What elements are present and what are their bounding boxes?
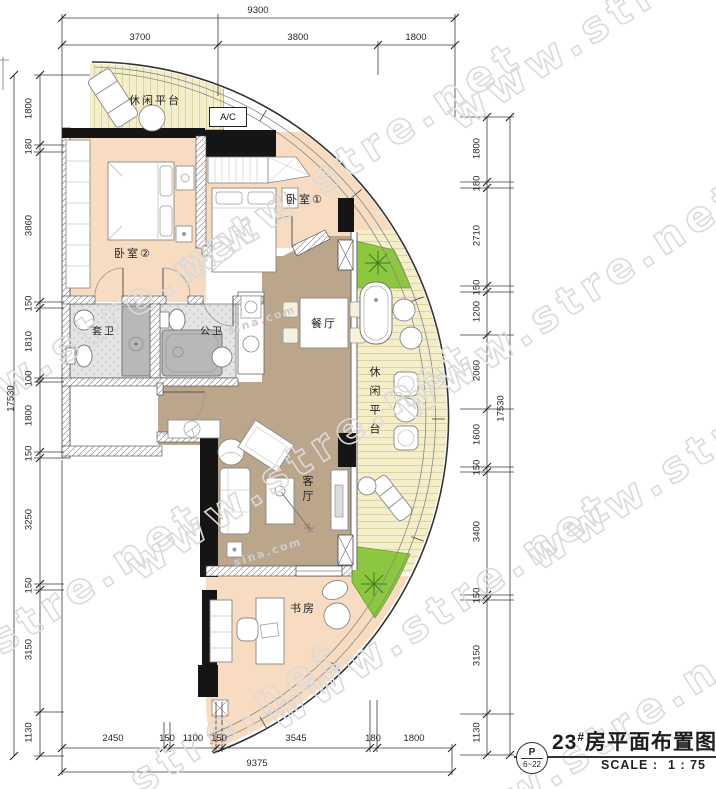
dim-left-seg: 150 — [24, 424, 35, 484]
dim-bottom-seg: 3545 — [266, 733, 326, 744]
dim-right-seg: 3150 — [472, 626, 483, 686]
dim-right-seg: 180 — [472, 154, 483, 214]
dim-top-seg: 3800 — [268, 32, 328, 43]
dim-bottom-total: 9375 — [227, 758, 287, 769]
floorplan-drawing — [0, 0, 716, 789]
dim-right-seg: 150 — [472, 438, 483, 498]
dim-bottom-seg: 1800 — [384, 733, 444, 744]
room-label-living: 客厅 — [299, 475, 315, 505]
room-label-dining: 餐厅 — [311, 315, 337, 331]
room-label-leisure-right: 休闲平台 — [366, 366, 382, 442]
dim-left-seg: 3860 — [24, 196, 35, 256]
drawing-title: 23#房平面布置图 — [552, 726, 716, 756]
ac-closet: A/C — [209, 107, 247, 127]
drawing-stamp: P 6~22 — [516, 742, 548, 774]
title-text: 房平面布置图 — [585, 731, 716, 754]
dim-bottom-seg: 150 — [189, 733, 249, 744]
dim-top-total: 9300 — [228, 5, 288, 16]
room-label-bedroom2: 卧室② — [114, 245, 152, 261]
dim-top-seg: 3700 — [110, 32, 170, 43]
title-sup: # — [577, 730, 585, 744]
room-label-leisure-top: 休闲平台 — [129, 92, 181, 108]
dim-left-seg: 3250 — [24, 490, 35, 550]
room-label-ac: A/C — [220, 112, 236, 123]
dim-right-seg: 150 — [472, 566, 483, 626]
dim-bottom-seg: 2450 — [83, 733, 143, 744]
dim-right-seg: 3400 — [472, 502, 483, 562]
scale-label: SCALE : — [601, 758, 658, 772]
dim-left-seg: 180 — [24, 117, 35, 177]
room-label-public-bath: 公卫 — [200, 323, 224, 338]
room-label-study: 书房 — [290, 600, 316, 616]
room-label-bedroom1: 卧室① — [286, 191, 324, 207]
dim-right-seg: 1200 — [472, 282, 483, 342]
floorplan-canvas: www.stre.net www.stre.net www.stre.net w… — [0, 0, 716, 789]
scale-value: 1 : 75 — [668, 758, 706, 772]
stamp-bottom: 6~22 — [521, 758, 543, 769]
dim-left-seg: 3150 — [24, 620, 35, 680]
dim-left-seg: 150 — [24, 556, 35, 616]
dim-top-seg: 1800 — [386, 32, 446, 43]
dim-right-seg: 1130 — [472, 703, 483, 763]
drawing-scale: SCALE :1 : 75 — [560, 758, 706, 772]
dim-right-seg: 2060 — [472, 341, 483, 401]
title-number: 23 — [552, 731, 577, 754]
dim-left-seg: 1130 — [24, 703, 35, 763]
dim-right-seg: 2710 — [472, 206, 483, 266]
stamp-top: P — [529, 747, 536, 758]
dim-left-total: 17530 — [6, 369, 17, 429]
room-label-ensuite-bath: 套卫 — [92, 323, 116, 338]
dim-right-total: 17530 — [496, 379, 507, 439]
